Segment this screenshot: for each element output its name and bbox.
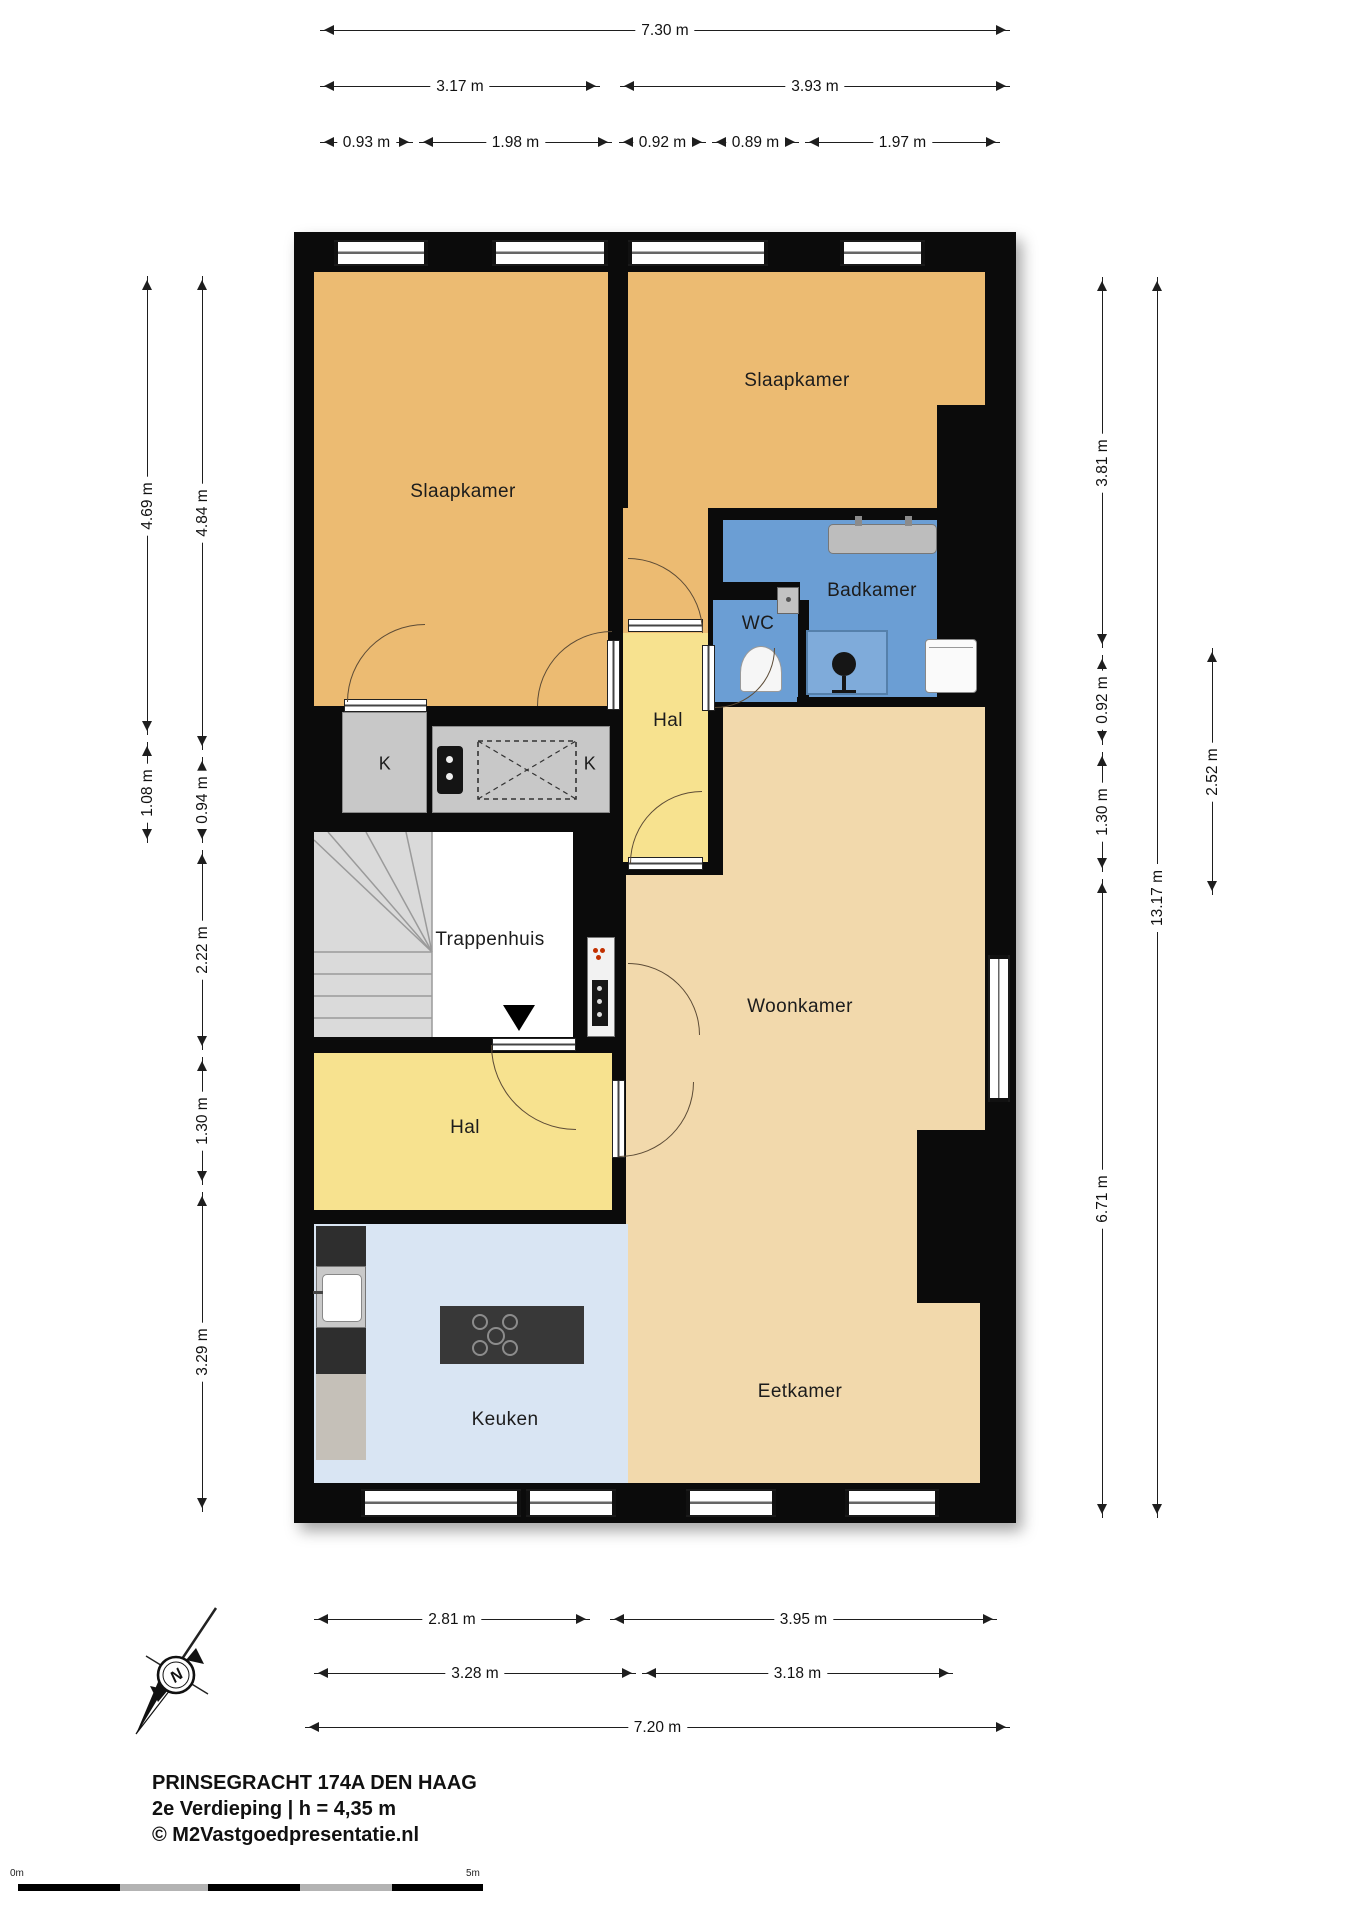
dim-top-c5: 1.97 m xyxy=(805,142,1000,143)
hob-burner-icon xyxy=(472,1340,488,1356)
kitchen-counter-dark xyxy=(316,1328,366,1374)
window xyxy=(840,240,925,266)
window xyxy=(526,1489,616,1517)
room-label-keuken: Keuken xyxy=(472,1409,539,1431)
hob-burner-icon xyxy=(472,1314,488,1330)
dim-bottom-d: 3.18 m xyxy=(642,1673,953,1674)
dim-top-a: 3.17 m xyxy=(320,86,600,87)
faucet-icon xyxy=(855,516,862,526)
kitchen-island xyxy=(440,1306,584,1364)
dim-top-total: 7.30 m xyxy=(320,30,1010,31)
window xyxy=(628,240,768,266)
dim-bottom-c: 3.28 m xyxy=(314,1673,636,1674)
room-slaapkamer-right xyxy=(628,405,937,508)
boiler-icon xyxy=(592,980,608,1026)
dim-top-c4: 0.89 m xyxy=(712,142,799,143)
dim-left-222: 2.22 m xyxy=(202,850,203,1050)
dim-right-total: 13.17 m xyxy=(1157,277,1158,1518)
counter-appliance-dashed-icon xyxy=(477,740,577,800)
kitchen-counter-dark xyxy=(316,1226,366,1266)
shower-icon xyxy=(806,630,888,695)
stove-icon xyxy=(437,746,463,794)
hob-burner-icon xyxy=(487,1327,505,1345)
window xyxy=(334,240,428,266)
washing-machine-icon xyxy=(925,639,977,693)
room-label-slaapkamer-right: Slaapkamer xyxy=(744,370,849,392)
floor-line: 2e Verdieping | h = 4,35 m xyxy=(152,1796,477,1822)
title-block: PRINSEGRACHT 174A DEN HAAG 2e Verdieping… xyxy=(152,1770,477,1848)
dim-left-130: 1.30 m xyxy=(202,1057,203,1185)
window xyxy=(492,240,608,266)
dim-right-671: 6.71 m xyxy=(1102,879,1103,1518)
room-label-kast-counter: K xyxy=(584,754,596,775)
wc-sink-icon xyxy=(777,587,799,614)
dim-right-381: 3.81 m xyxy=(1102,277,1103,648)
stairs-icon xyxy=(314,832,436,1037)
dim-left-469: 4.69 m xyxy=(147,276,148,735)
dim-right-130: 1.30 m xyxy=(1102,752,1103,872)
kitchen-sink-icon xyxy=(316,1266,366,1328)
window xyxy=(845,1489,939,1517)
dim-top-c2: 1.98 m xyxy=(419,142,612,143)
dim-bottom-a: 2.81 m xyxy=(314,1619,590,1620)
dim-right-092: 0.92 m xyxy=(1102,655,1103,745)
dim-top-b: 3.93 m xyxy=(620,86,1010,87)
room-woonkamer xyxy=(723,707,985,1130)
door-opening xyxy=(702,645,715,711)
floorplan: Slaapkamer Slaapkamer Hal Badkamer WC Tr… xyxy=(294,232,1016,1523)
window xyxy=(361,1489,521,1517)
scalebar-five-label: 5m xyxy=(466,1868,480,1879)
dim-right-252: 2.52 m xyxy=(1212,648,1213,895)
faucet-icon xyxy=(905,516,912,526)
address-line: PRINSEGRACHT 174A DEN HAAG xyxy=(152,1770,477,1796)
heater-flame-icon xyxy=(593,948,611,960)
room-label-badkamer: Badkamer xyxy=(827,580,917,602)
room-label-slaapkamer-left: Slaapkamer xyxy=(410,481,515,503)
room-label-hal-upper: Hal xyxy=(653,710,683,732)
dim-left-484: 4.84 m xyxy=(202,276,203,750)
kitchen-counter-light xyxy=(316,1374,366,1460)
room-label-kast-left: K xyxy=(379,754,391,775)
room-label-hal-lower: Hal xyxy=(450,1117,480,1139)
scale-bar xyxy=(18,1884,483,1891)
dim-left-094: 0.94 m xyxy=(202,757,203,843)
room-label-trappenhuis: Trappenhuis xyxy=(435,929,544,951)
compass-north-icon: N xyxy=(112,1598,242,1748)
dim-left-329: 3.29 m xyxy=(202,1192,203,1512)
hob-burner-icon xyxy=(502,1340,518,1356)
bathroom-vanity-icon xyxy=(828,524,937,554)
room-eetkamer xyxy=(723,1130,917,1303)
window xyxy=(988,955,1010,1102)
stairs-direction-arrow-icon xyxy=(503,1005,535,1031)
floorplan-page: Slaapkamer Slaapkamer Hal Badkamer WC Tr… xyxy=(0,0,1358,1920)
dim-bottom-b: 3.95 m xyxy=(610,1619,997,1620)
room-label-eetkamer: Eetkamer xyxy=(758,1381,843,1403)
window xyxy=(686,1489,776,1517)
scalebar-zero-label: 0m xyxy=(10,1868,24,1879)
dim-bottom-total: 7.20 m xyxy=(305,1727,1010,1728)
dim-top-c1: 0.93 m xyxy=(320,142,413,143)
copyright-line: © M2Vastgoedpresentatie.nl xyxy=(152,1822,477,1848)
dim-top-c3: 0.92 m xyxy=(619,142,706,143)
room-label-wc: WC xyxy=(742,613,774,635)
hob-burner-icon xyxy=(502,1314,518,1330)
dim-left-108: 1.08 m xyxy=(147,742,148,843)
room-label-woonkamer: Woonkamer xyxy=(747,996,853,1018)
